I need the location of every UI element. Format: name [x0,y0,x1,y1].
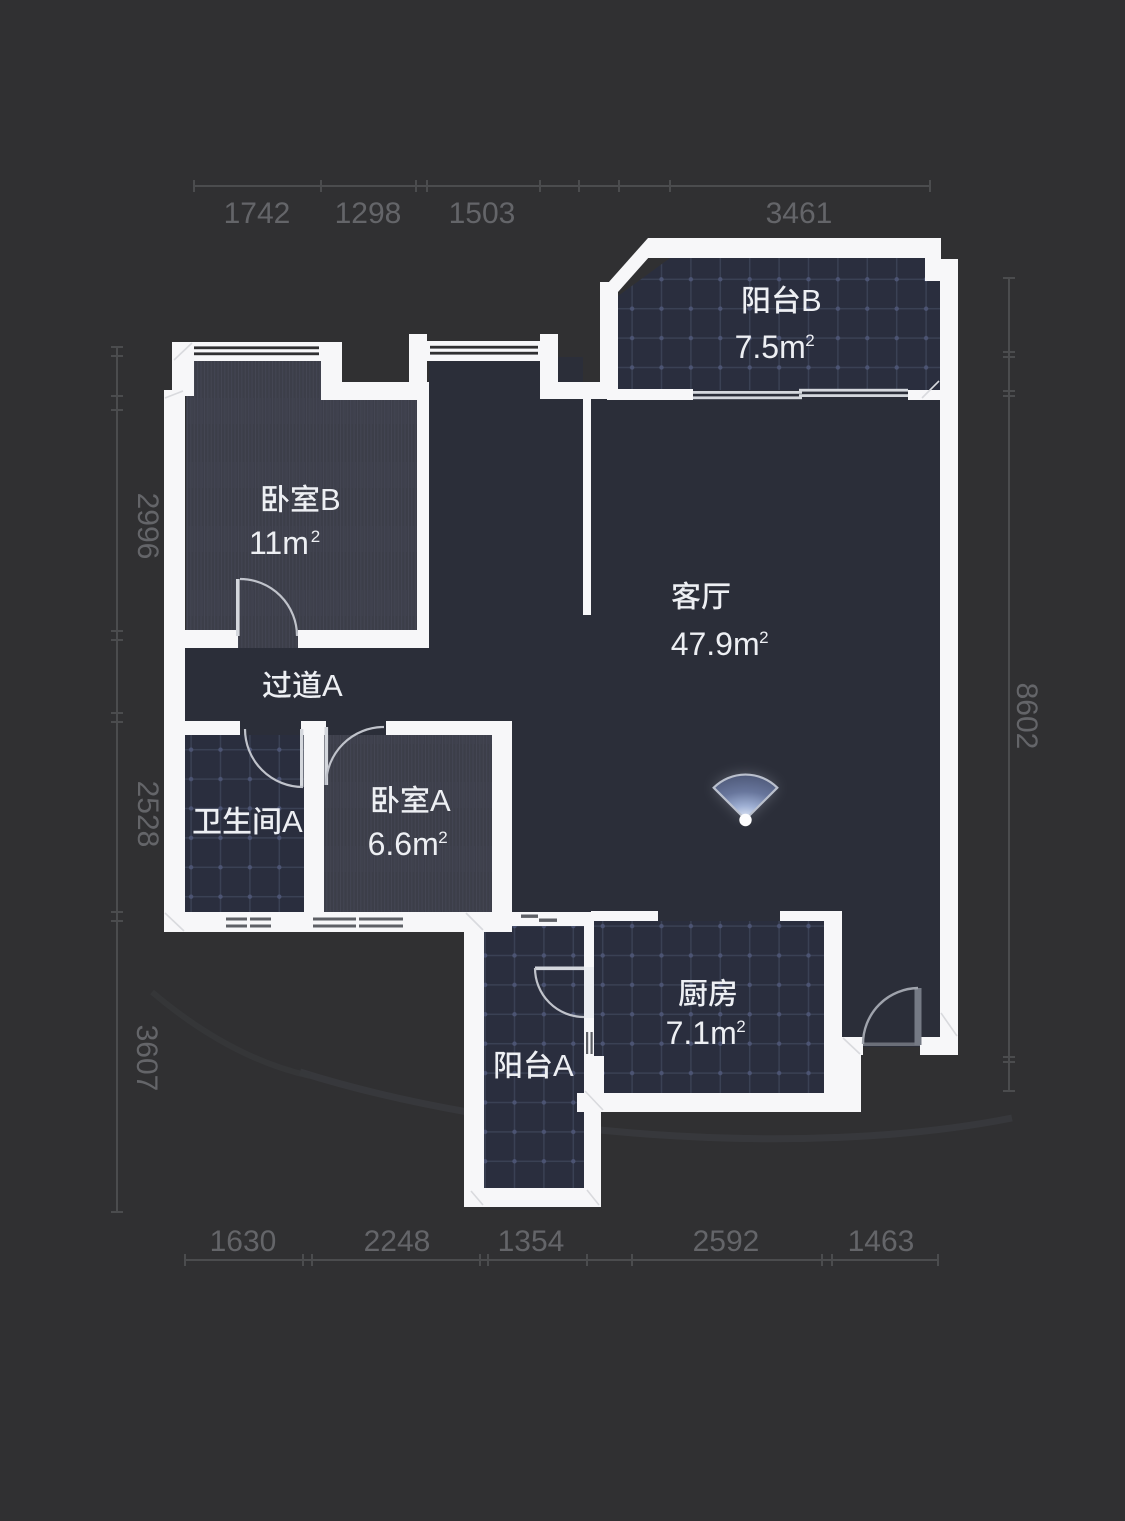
svg-text:1298: 1298 [335,197,402,230]
svg-text:A: A [553,1048,574,1083]
svg-text:1630: 1630 [210,1225,277,1258]
svg-text:2248: 2248 [364,1225,431,1258]
svg-text:1463: 1463 [848,1225,915,1258]
svg-text:2: 2 [438,828,447,847]
svg-text:A: A [430,783,451,818]
svg-text:2: 2 [759,628,768,647]
svg-text:B: B [320,482,341,517]
svg-text:6.6m: 6.6m [368,826,439,862]
svg-text:11m: 11m [249,525,309,561]
svg-text:B: B [801,283,822,318]
svg-text:7.5m: 7.5m [735,329,806,365]
svg-text:2996: 2996 [131,493,164,560]
svg-text:2: 2 [311,527,320,546]
svg-text:A: A [322,668,343,703]
svg-text:A: A [282,804,303,839]
svg-text:1742: 1742 [224,197,291,230]
svg-text:47.9m: 47.9m [671,626,760,662]
svg-text:2: 2 [805,331,814,350]
svg-text:2528: 2528 [131,781,164,848]
svg-text:7.1m: 7.1m [666,1015,737,1051]
svg-text:3607: 3607 [130,1025,163,1092]
svg-text:1503: 1503 [449,197,516,230]
svg-text:1354: 1354 [498,1225,565,1258]
svg-text:3461: 3461 [766,197,833,230]
svg-text:8602: 8602 [1010,683,1043,750]
svg-text:2592: 2592 [693,1225,760,1258]
svg-text:2: 2 [736,1017,745,1036]
